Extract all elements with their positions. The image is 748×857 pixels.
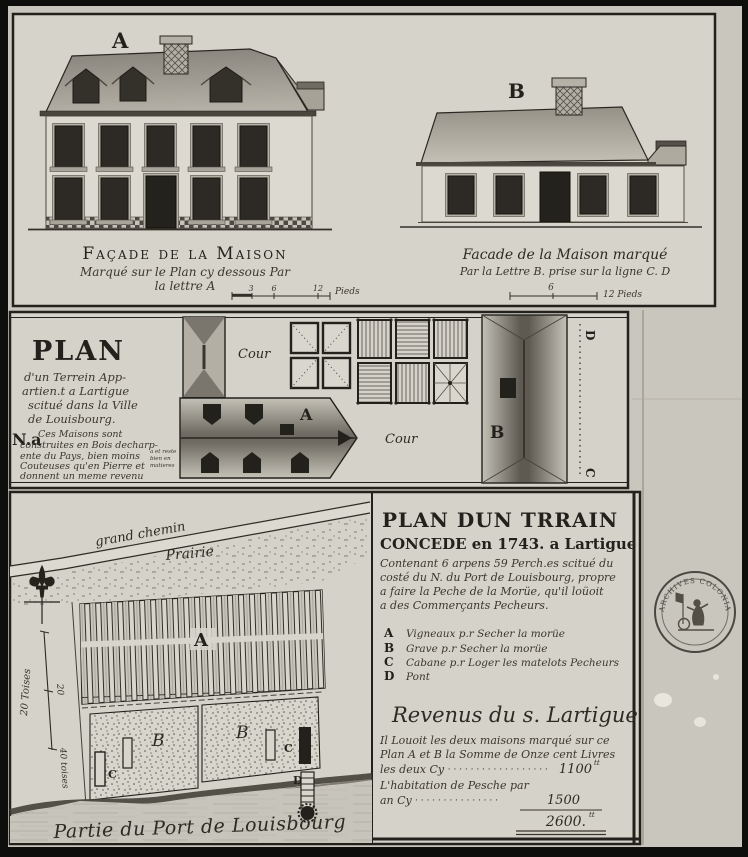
plan-line-c-label: C	[583, 468, 597, 478]
concession-body-4: a des Commerçants Pecheurs.	[380, 599, 548, 612]
facade-a-cornice	[40, 111, 316, 116]
facade-a-windows-upper	[50, 124, 272, 172]
legend-c-letter: C	[384, 655, 394, 669]
scale-a-tick-12: 12	[313, 284, 323, 293]
cabane-c2-label: C	[284, 742, 293, 755]
facade-b-title: Facade de la Maison marqué	[462, 247, 668, 263]
legend-b-letter: B	[384, 641, 394, 655]
revenue-line3: les deux Cy	[380, 763, 445, 776]
cabane-c1-label: C	[108, 768, 117, 781]
plan-side-note-1: a et reste	[150, 449, 177, 455]
plan-side-note-3: matieres	[150, 463, 175, 469]
scale-a-tick-6: 6	[271, 284, 276, 293]
legend-a-text: Vigneaux p.r Secher la morüe	[406, 628, 565, 640]
plan-building-b-label: B	[490, 423, 504, 443]
revenue-dots2: · · · · · · · · · · · · · · ·	[415, 796, 498, 806]
scanned-document: A	[0, 0, 748, 857]
legend-d-letter: D	[384, 669, 394, 683]
revenue-line5: an Cy	[380, 794, 413, 807]
facade-a-letter: A	[111, 28, 129, 53]
middle-panel-plan: PLAN d'un Terrein App- artien.t a Lartig…	[10, 312, 628, 488]
plan-note-line5: donnent un meme revenu	[20, 471, 144, 482]
paper-blemish-1	[654, 693, 672, 707]
facade-b-chimney	[556, 87, 582, 115]
plan-cour-left-label: Cour	[238, 347, 271, 362]
facade-a-title: Façade de la Maison	[82, 244, 287, 264]
revenue-total: 2600.	[545, 814, 586, 830]
revenue-line1: Il Louoit les deux maisons marqué sur ce	[379, 734, 610, 747]
plan-hip-building	[183, 317, 225, 397]
paper-blemish-2	[694, 717, 706, 727]
facade-b-door	[540, 172, 570, 222]
grave-b1-label: B	[151, 731, 165, 751]
scale-a-tick-3: 3	[248, 284, 253, 293]
field-a-label: A	[193, 630, 209, 651]
vigneaux-field-a: A	[80, 590, 325, 704]
facade-a-door	[146, 176, 176, 228]
concession-body-3: a faire la Peche de la Morüe, qu'il loüo…	[380, 585, 604, 598]
facade-b-eaves	[416, 162, 656, 166]
facade-b-chimney-cap	[552, 78, 586, 87]
revenue-line4: L'habitation de Pesche par	[379, 779, 530, 792]
facade-a-chimney-cap	[160, 36, 192, 44]
plan-title-line3: scitué dans la Ville	[28, 398, 138, 412]
plan-building-a: A	[180, 398, 357, 478]
revenue-sup2: tt	[589, 811, 595, 819]
concession-body-1: Contenant 6 arpens 59 Perch.es scitué du	[380, 557, 613, 570]
facade-a-wing	[297, 82, 324, 89]
plan-title-line4: de Louisbourg.	[28, 412, 116, 426]
revenue-line2: Plan A et B la Somme de Onze cent Livres	[379, 748, 616, 761]
concession-body-2: costé du N. du Port de Louisbourg, propr…	[380, 571, 616, 584]
plan-side-note-2: bien en	[150, 456, 171, 462]
revenue-sup1: tt	[594, 759, 600, 767]
top-panel-facades: A	[13, 14, 715, 306]
concession-title2: CONCEDE en 1743. a Lartigue	[380, 535, 636, 553]
legend-b-text: Grave p.r Secher la morüe	[406, 643, 547, 655]
plan-title-line2: artien.t a Lartigue	[22, 384, 129, 398]
scale-a-unit: Pieds	[334, 287, 360, 297]
scale-b-unit: 12 Pieds	[603, 290, 642, 300]
plan-title: PLAN	[32, 336, 125, 367]
scale-b-tick-6: 6	[548, 283, 554, 293]
facade-b-letter: B	[508, 79, 525, 103]
grave-b2-label: B	[235, 723, 249, 743]
legend-a-letter: A	[383, 626, 394, 640]
plan-title-line1: d'un Terrein App-	[24, 370, 126, 384]
legend-d-text: Pont	[405, 671, 431, 683]
legend-c-text: Cabane p.r Loger les matelots Pecheurs	[406, 657, 620, 669]
revenue-title: Revenus du s. Lartigue	[391, 703, 638, 727]
grave-b2: B C	[202, 697, 320, 782]
scale-mid-label: 20	[54, 683, 65, 696]
paper-blemish-3	[713, 674, 719, 680]
revenue-amount2: 1500	[547, 793, 580, 808]
plan-note-line2: construites en Bois decharp-	[20, 440, 158, 451]
facade-a-body	[46, 116, 312, 228]
plan-building-a-label: A	[299, 405, 313, 424]
facade-a-windows-lower	[50, 174, 272, 229]
plan-line-d-label: D	[583, 330, 597, 340]
revenue-dots1: · · · · · · · · · · · · · · · · · · ·	[442, 765, 548, 775]
concession-title1: PLAN DUN TRRAIN	[382, 508, 618, 532]
facade-a-chimney	[164, 44, 188, 74]
plan-note-line1: Ces Maisons sont	[38, 429, 123, 440]
facade-a-sub1: Marqué sur le Plan cy dessous Par	[79, 265, 291, 279]
facade-a-sub2: la lettre A	[155, 279, 216, 293]
grave-b1: B C	[90, 706, 198, 800]
facade-b-sub1: Par la Lettre B. prise sur la ligne C. D	[459, 265, 671, 278]
bottom-panels: grand chemin Prairie 20 Toises 20 40 toi…	[10, 492, 640, 844]
plan-cour-right-label: Cour	[385, 432, 418, 447]
revenue-amount1: 1100	[559, 762, 592, 777]
document-canvas: A	[0, 0, 748, 857]
plan-building-b: B	[482, 315, 567, 483]
